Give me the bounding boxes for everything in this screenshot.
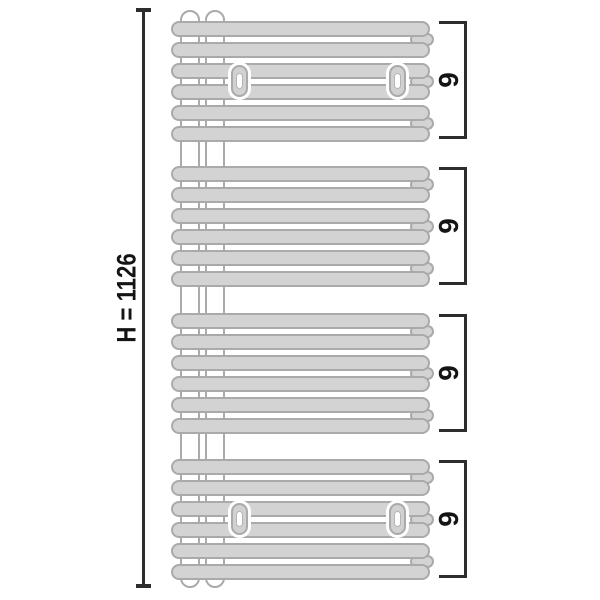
radiator-tube bbox=[171, 480, 430, 496]
tube-count-bracket-4: 6 bbox=[439, 460, 467, 578]
tube-count-bracket-1: 6 bbox=[439, 21, 467, 139]
radiator-tube bbox=[171, 543, 430, 559]
tube-count-bracket-2: 6 bbox=[439, 167, 467, 285]
wall-mount-bracket bbox=[389, 65, 406, 97]
radiator-tube bbox=[171, 564, 430, 580]
tube-count-bracket-3: 6 bbox=[439, 314, 467, 432]
radiator-tube bbox=[171, 166, 430, 182]
radiator-tube bbox=[171, 187, 430, 203]
radiator-tube bbox=[171, 105, 430, 121]
radiator-tube bbox=[171, 334, 430, 350]
dimension-end-tick-bottom bbox=[136, 584, 151, 588]
radiator-tube bbox=[171, 418, 430, 434]
radiator-tube bbox=[171, 271, 430, 287]
height-dimension-label: H = 1126 bbox=[112, 253, 143, 342]
radiator-tube bbox=[171, 355, 430, 371]
radiator-technical-diagram: H = 1126 6 6 6 6 bbox=[0, 0, 600, 600]
bracket-screw-hole bbox=[394, 73, 401, 89]
radiator-tube bbox=[171, 126, 430, 142]
wall-mount-bracket bbox=[389, 503, 406, 535]
bracket-screw-hole bbox=[394, 511, 401, 527]
bracket-screw-hole bbox=[236, 511, 243, 527]
radiator-tube bbox=[171, 397, 430, 413]
bracket-screw-hole bbox=[236, 73, 243, 89]
tube-count-label-2: 6 bbox=[434, 218, 462, 234]
radiator-tube bbox=[171, 229, 430, 245]
radiator-tube bbox=[171, 313, 430, 329]
radiator-tube bbox=[171, 42, 430, 58]
radiator-tube bbox=[171, 21, 430, 37]
tube-count-label-1: 6 bbox=[434, 72, 462, 88]
tube-count-label-3: 6 bbox=[434, 365, 462, 381]
wall-mount-bracket bbox=[231, 65, 248, 97]
radiator-tube bbox=[171, 376, 430, 392]
radiator-tube bbox=[171, 250, 430, 266]
wall-mount-bracket bbox=[231, 503, 248, 535]
radiator-tube bbox=[171, 459, 430, 475]
tube-count-label-4: 6 bbox=[434, 511, 462, 527]
radiator-tube bbox=[171, 208, 430, 224]
